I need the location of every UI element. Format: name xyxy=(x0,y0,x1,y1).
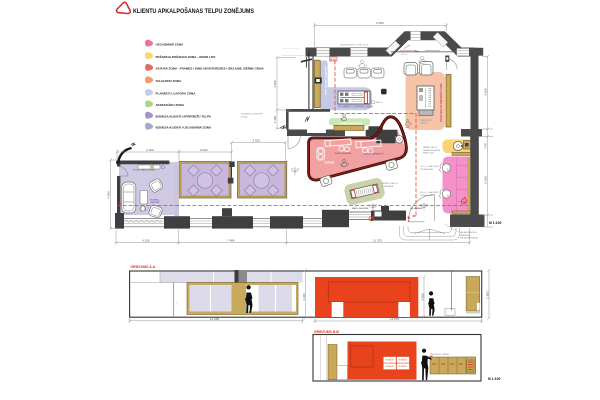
svg-text:3 965: 3 965 xyxy=(420,293,424,301)
svg-text:BĒRNU GALDS: BĒRNU GALDS xyxy=(382,182,398,185)
svg-text:BIZNESA KLIENTU UZGAIDĀMĀ ZONA: BIZNESA KLIENTU UZGAIDĀMĀ ZONA xyxy=(156,125,212,129)
svg-text:PAŠAPKALPOŠANAS ZONA – MANS LM: PAŠAPKALPOŠANAS ZONA – MANS LMT xyxy=(156,54,216,59)
svg-text:7 486: 7 486 xyxy=(227,238,235,242)
svg-text:11 575: 11 575 xyxy=(390,317,399,321)
svg-text:B-B: B-B xyxy=(330,57,336,61)
svg-text:UZGAIDĀMĀ: UZGAIDĀMĀ xyxy=(420,168,434,171)
svg-text:4 500: 4 500 xyxy=(484,88,488,96)
svg-text:GALDS: GALDS xyxy=(376,101,383,104)
svg-text:M 1:100: M 1:100 xyxy=(489,221,502,225)
svg-text:IEEJAS MEZGLS: IEEJAS MEZGLS xyxy=(460,231,478,234)
svg-text:planšetes, datori: planšetes, datori xyxy=(430,352,449,356)
svg-text:9 050: 9 050 xyxy=(376,21,384,25)
svg-text:UZGAIDĀMĀ ZONA: UZGAIDĀMĀ ZONA xyxy=(156,42,185,46)
svg-text:SĒDVIETA PIE LOGA: SĒDVIETA PIE LOGA xyxy=(398,51,420,54)
svg-text:SOLS + GALDIŅŠ: SOLS + GALDIŅŠ xyxy=(420,165,438,168)
svg-text:VIEDIERĪČU: VIEDIERĪČU xyxy=(420,119,432,122)
svg-text:ZONA: ZONA xyxy=(241,115,248,118)
svg-text:MAZS GALDIŅŠ: MAZS GALDIŅŠ xyxy=(352,207,369,210)
svg-text:SĒDVIETA PIE LOGA. SOLS: SĒDVIETA PIE LOGA. SOLS xyxy=(340,44,369,47)
svg-text:M 1:100: M 1:100 xyxy=(488,377,501,381)
svg-text:NOKIA 33: NOKIA 33 xyxy=(386,359,394,362)
svg-text:BIZNESA KLIENTU APSPRIEŽU TELP: BIZNESA KLIENTU APSPRIEŽU TELPA xyxy=(156,113,212,118)
svg-text:3 300: 3 300 xyxy=(302,293,306,301)
svg-text:PAŠAPKALPO-: PAŠAPKALPO- xyxy=(423,146,438,149)
svg-text:4 150: 4 150 xyxy=(146,148,154,152)
svg-text:NOKIA 33: NOKIA 33 xyxy=(399,359,407,362)
svg-text:AKSESUĀRU ZONA: AKSESUĀRU ZONA xyxy=(156,103,185,107)
svg-text:4 150: 4 150 xyxy=(142,238,150,242)
svg-text:740: 740 xyxy=(484,143,488,148)
svg-text:PIE SIENAS: PIE SIENAS xyxy=(410,207,423,210)
svg-text:4 650: 4 650 xyxy=(273,80,277,88)
svg-text:UZGAIDĀMĀ: UZGAIDĀMĀ xyxy=(420,194,434,197)
svg-text:SOLS: SOLS xyxy=(401,54,407,56)
svg-text:GALDS EKRĀNI: GALDS EKRĀNI xyxy=(335,152,352,155)
svg-text:GALDS EKRĀNI TV: GALDS EKRĀNI TV xyxy=(364,153,385,156)
svg-text:PLANŠETU, DATORU ZONA: PLANŠETU, DATORU ZONA xyxy=(156,91,197,96)
svg-text:SOLS + GALDIŅŠ: SOLS + GALDIŅŠ xyxy=(420,191,438,194)
svg-text:MANS LMT: MANS LMT xyxy=(423,152,435,155)
svg-text:11 575: 11 575 xyxy=(373,238,382,242)
svg-text:2 600: 2 600 xyxy=(200,148,208,152)
svg-text:TELEFONU ZONA: TELEFONU ZONA xyxy=(156,79,182,83)
svg-text:GALDS: GALDS xyxy=(420,122,428,125)
svg-text:AKSESUĀRU SIENA: AKSESUĀRU SIENA xyxy=(340,122,363,125)
svg-text:ZĪMĒŠANA: ZĪMĒŠANA xyxy=(382,185,394,188)
svg-text:NOKIA 33: NOKIA 33 xyxy=(399,365,407,368)
svg-text:PLANŠETU, DATORU: PLANŠETU, DATORU xyxy=(241,113,263,116)
svg-text:1 350: 1 350 xyxy=(273,115,277,123)
svg-text:KLIENTU APKALPOŠANAS TELPU ZON: KLIENTU APKALPOŠANAS TELPU ZONĒJUMS xyxy=(133,6,254,15)
svg-text:GALDIŅŠ: GALDIŅŠ xyxy=(150,201,160,204)
svg-text:SATURA ZONA - FRAMES / KINO UN: SATURA ZONA - FRAMES / KINO UN INTERESES… xyxy=(156,67,265,71)
svg-text:A: A xyxy=(118,201,121,206)
svg-text:GRIEZUMS A-A: GRIEZUMS A-A xyxy=(131,265,156,269)
svg-text:NOKIA 33: NOKIA 33 xyxy=(386,365,394,368)
svg-text:2 900: 2 900 xyxy=(485,291,489,299)
svg-text:GRIEZUMS B-B: GRIEZUMS B-B xyxy=(314,330,339,334)
svg-text:B: B xyxy=(408,216,411,220)
svg-text:TELEFONU UN VIEDIERĪČU ZONA: TELEFONU UN VIEDIERĪČU ZONA xyxy=(440,83,443,122)
svg-text:ŠANĀS IEKĀRTA: ŠANĀS IEKĀRTA xyxy=(423,149,441,152)
svg-text:IEEJA VESTIBILĀ: IEEJA VESTIBILĀ xyxy=(460,237,478,240)
svg-text:5 180: 5 180 xyxy=(484,176,488,184)
svg-text:EKRĀNS: EKRĀNS xyxy=(325,162,335,165)
svg-text:VĒJTVERIS: VĒJTVERIS xyxy=(334,213,346,216)
svg-text:PLANŠETU, DATORU ZONA: PLANŠETU, DATORU ZONA xyxy=(324,66,327,95)
svg-text:14 650: 14 650 xyxy=(210,317,220,321)
svg-text:4 950: 4 950 xyxy=(106,191,110,199)
svg-text:2 602: 2 602 xyxy=(253,139,261,143)
